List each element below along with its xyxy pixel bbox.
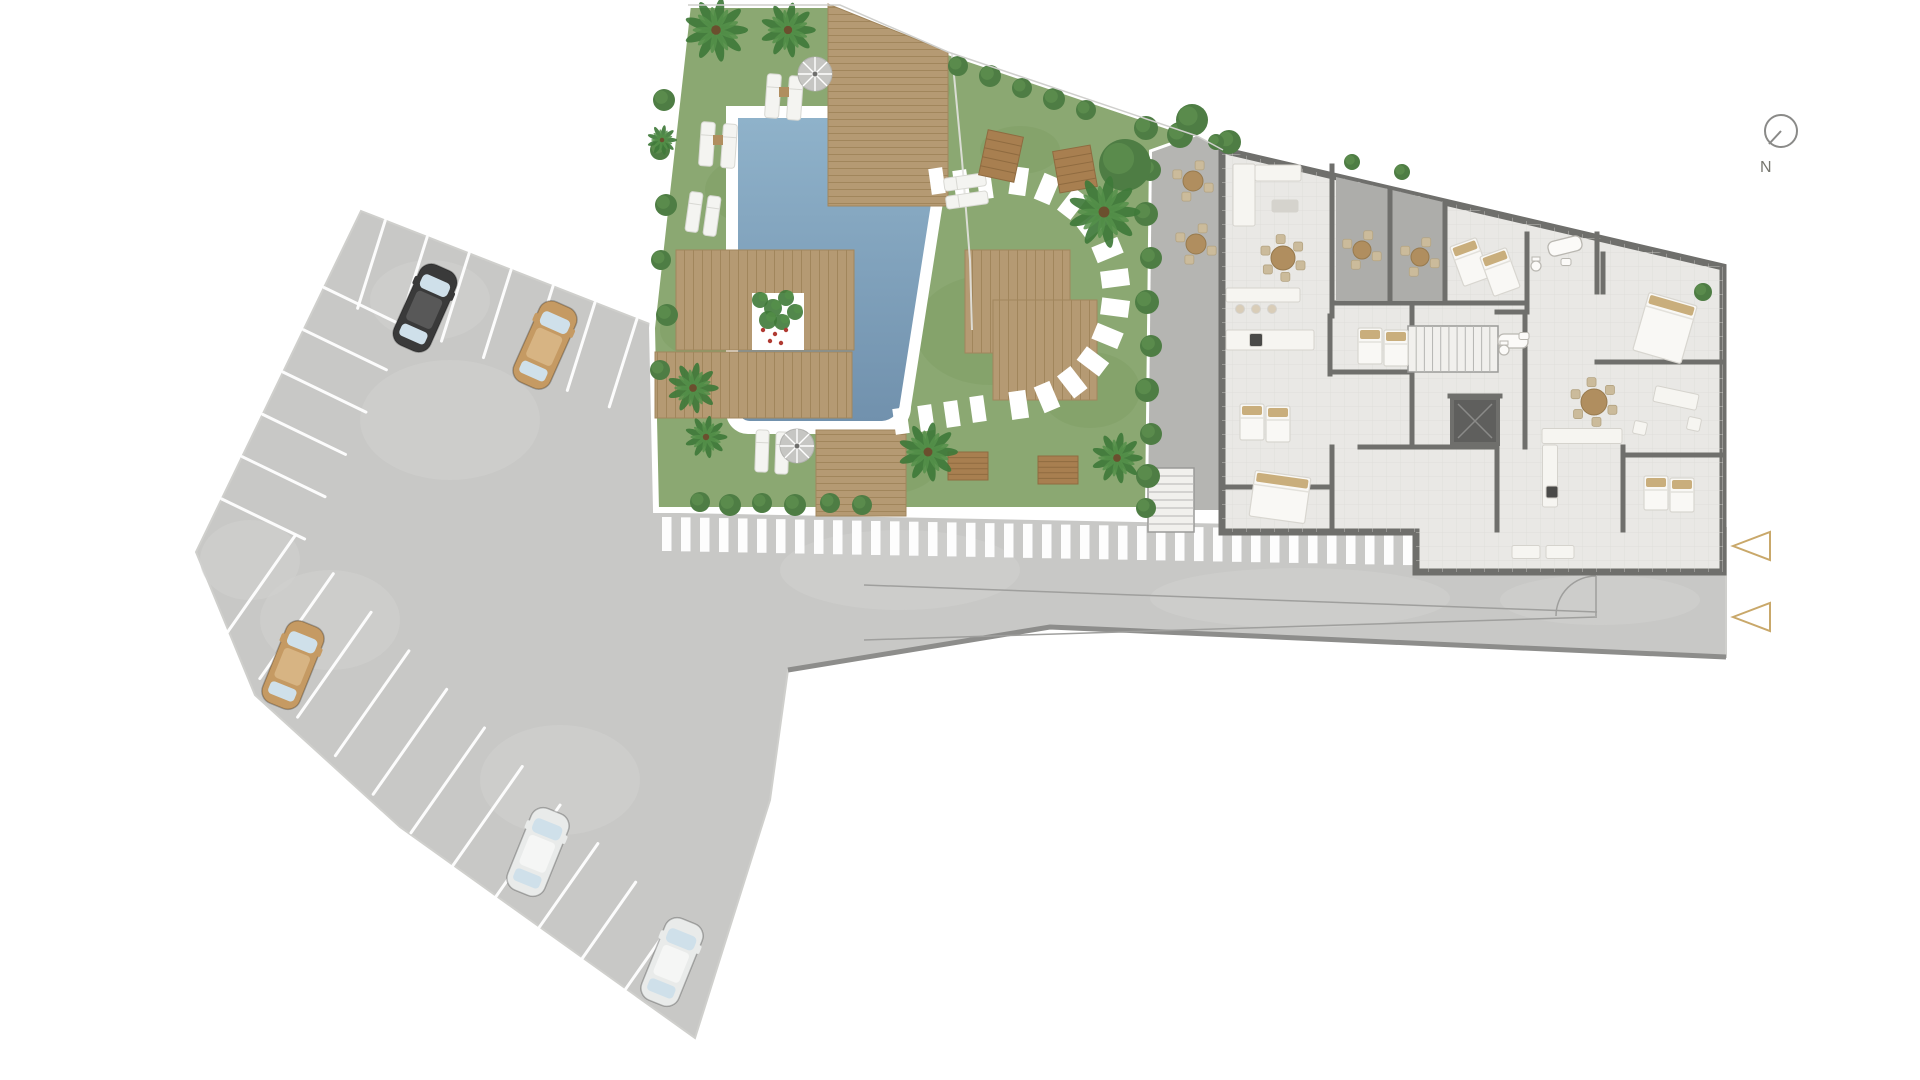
table-top — [1353, 241, 1371, 259]
furniture-item — [1233, 164, 1255, 226]
compass-needle-icon — [1769, 131, 1781, 144]
crosswalk-stripe — [1080, 525, 1090, 559]
planter-flower — [784, 328, 788, 332]
bush-highlight — [652, 362, 664, 374]
sunbed-frame — [1038, 456, 1078, 484]
bush-highlight — [1142, 249, 1155, 262]
crosswalk-stripe — [719, 518, 729, 552]
chair — [1173, 170, 1182, 179]
crosswalk-stripe — [852, 521, 862, 555]
bed-pillow — [1268, 408, 1288, 417]
chair — [1261, 246, 1270, 255]
bush-highlight — [754, 495, 766, 507]
toilet-tank — [1500, 341, 1508, 345]
asphalt-patch — [200, 520, 300, 600]
palm-trunk — [703, 434, 709, 440]
bed-pillow — [1386, 332, 1406, 341]
crosswalk-stripe — [662, 517, 672, 551]
palm-trunk — [711, 25, 721, 35]
crosswalk-stripe — [833, 520, 843, 554]
parasol-pole — [813, 72, 818, 77]
chair — [1592, 417, 1601, 426]
crosswalk-stripe — [1384, 531, 1394, 565]
stool — [1268, 305, 1277, 314]
bush-highlight — [1395, 165, 1405, 175]
table-top — [1581, 389, 1607, 415]
crosswalk-stripe — [909, 522, 919, 556]
table-top — [1271, 246, 1295, 270]
palm-trunk — [1113, 454, 1121, 462]
wood-sunbed — [1038, 456, 1078, 484]
bed — [1358, 328, 1382, 364]
palm-trunk — [924, 448, 933, 457]
toilet — [1531, 261, 1541, 271]
chair — [1605, 385, 1614, 394]
parasol-icon — [780, 429, 814, 463]
side-table — [779, 87, 789, 97]
lounger-base — [755, 430, 769, 472]
crosswalk-stripe — [776, 519, 786, 553]
crosswalk-stripe — [871, 521, 881, 555]
crosswalk-stripe — [1194, 527, 1204, 561]
chair — [1343, 239, 1352, 248]
chair — [1263, 265, 1272, 274]
chair — [1296, 261, 1305, 270]
bush-highlight — [1695, 284, 1706, 295]
furniture-item — [1226, 330, 1314, 350]
bush-highlight — [657, 196, 670, 209]
crosswalk-stripe — [757, 519, 767, 553]
crosswalk-stripe — [814, 520, 824, 554]
stepping-stone — [1100, 297, 1130, 317]
chair — [1571, 390, 1580, 399]
staircase — [1408, 326, 1498, 372]
chair — [1204, 183, 1213, 192]
furniture-item — [1546, 486, 1558, 498]
parasol-pole — [795, 444, 800, 449]
furniture-item — [1632, 420, 1647, 435]
bush-highlight — [1137, 292, 1151, 306]
chair — [1401, 246, 1410, 255]
chair — [1281, 272, 1290, 281]
bush-highlight — [1138, 466, 1152, 480]
table-top — [1411, 248, 1429, 266]
bush-highlight — [786, 496, 799, 509]
crosswalk-stripe — [928, 522, 938, 556]
entrance-arrow-icon — [1733, 532, 1770, 560]
planter-plant-highlight — [794, 305, 803, 314]
bed — [1266, 406, 1290, 442]
side-table — [713, 135, 723, 145]
sun-lounger — [755, 430, 769, 472]
furniture-item — [1686, 416, 1701, 431]
crosswalk-stripe — [738, 518, 748, 552]
asphalt-patch — [1500, 575, 1700, 625]
deck-planter — [752, 290, 804, 350]
bed-pillow — [1672, 480, 1692, 489]
terrace-floor — [1392, 190, 1443, 300]
lounger-base — [720, 124, 737, 169]
chair — [1195, 161, 1204, 170]
crosswalk-stripe — [947, 522, 957, 556]
layer-building — [1148, 150, 1724, 572]
furniture-item — [1542, 429, 1622, 444]
bush-highlight — [721, 496, 734, 509]
bush-highlight — [950, 58, 962, 70]
sun-lounger — [720, 124, 737, 169]
crosswalk-stripe — [1004, 523, 1014, 557]
chair — [1207, 246, 1216, 255]
bush-highlight — [1142, 425, 1155, 438]
furniture-item — [1255, 165, 1301, 181]
sun-lounger — [764, 74, 781, 119]
elevator — [1452, 398, 1498, 444]
wood-sunbed — [948, 452, 988, 480]
chair — [1372, 252, 1381, 261]
palm-trunk — [660, 138, 664, 142]
site-plan-canvas: N — [0, 0, 1920, 1080]
chair — [1182, 192, 1191, 201]
bush-highlight — [1103, 143, 1134, 174]
bed-pillow — [1646, 478, 1666, 487]
stepping-stone — [1100, 268, 1130, 288]
chair — [1351, 260, 1360, 269]
bush-highlight — [822, 495, 834, 507]
bush-highlight — [1078, 102, 1090, 114]
compass-north-label: N — [1760, 159, 1772, 176]
asphalt-patch — [360, 360, 540, 480]
furniture-item — [1272, 200, 1298, 212]
sink — [1519, 333, 1529, 340]
bush-highlight — [1142, 337, 1155, 350]
bush-highlight — [692, 494, 704, 506]
sink — [1561, 259, 1571, 266]
bush-highlight — [1014, 80, 1026, 92]
bed — [1240, 404, 1264, 440]
bed-pillow — [1360, 330, 1380, 339]
crosswalk-stripe — [681, 517, 691, 551]
sun-lounger — [698, 122, 715, 167]
stool — [1252, 305, 1261, 314]
bush-highlight — [1045, 90, 1058, 103]
crosswalk-stripe — [1061, 525, 1071, 559]
bush-highlight — [1345, 155, 1355, 165]
furniture-item — [1250, 334, 1263, 347]
site-plan-svg: N — [0, 0, 1920, 1080]
asphalt-patch — [1150, 568, 1450, 628]
chair — [1430, 259, 1439, 268]
chair — [1198, 224, 1207, 233]
planter-plant-highlight — [771, 300, 781, 310]
stair-well — [1408, 326, 1498, 372]
terrace-floor — [1336, 177, 1388, 300]
crosswalk-stripe — [966, 523, 976, 557]
planter-plant-highlight — [785, 291, 794, 300]
toilet-tank — [1532, 257, 1540, 261]
crosswalk-stripe — [1023, 524, 1033, 558]
palm-trunk — [784, 26, 792, 34]
planter-flower — [768, 339, 772, 343]
chair — [1587, 378, 1596, 387]
crosswalk-stripe — [985, 523, 995, 557]
lounger-base — [764, 74, 781, 119]
table-top — [1186, 234, 1206, 254]
furniture-item — [1546, 546, 1574, 559]
planter-flower — [761, 328, 765, 332]
furniture-item — [1226, 288, 1300, 302]
palm-trunk — [1099, 207, 1110, 218]
planter-flower — [779, 341, 783, 345]
crosswalk-stripe — [1042, 524, 1052, 558]
palm-trunk — [689, 384, 697, 392]
planter-plant-highlight — [781, 315, 790, 324]
bush-highlight — [1138, 500, 1150, 512]
furniture-item — [1512, 546, 1540, 559]
chair — [1409, 267, 1418, 276]
chair — [1364, 231, 1373, 240]
chair — [1276, 235, 1285, 244]
compass: N — [1760, 115, 1797, 176]
chair — [1422, 238, 1431, 247]
chair — [1185, 255, 1194, 264]
crosswalk-stripe — [795, 520, 805, 554]
bush-highlight — [981, 67, 994, 80]
chair — [1176, 233, 1185, 242]
bush-highlight — [1178, 106, 1197, 125]
bush-highlight — [653, 252, 665, 264]
bush-highlight — [854, 497, 866, 509]
bed — [1384, 330, 1408, 366]
bed-pillow — [1242, 406, 1262, 415]
planter-plant-highlight — [766, 312, 776, 322]
entrance-arrow-icon — [1733, 603, 1770, 631]
crosswalk-stripe — [890, 521, 900, 555]
planter-plant-highlight — [759, 293, 768, 302]
crosswalk-stripe — [1403, 531, 1413, 565]
bed — [1670, 478, 1694, 512]
chair — [1608, 405, 1617, 414]
bed — [1644, 476, 1668, 510]
chair — [1574, 410, 1583, 419]
lounger-base — [698, 122, 715, 167]
planter-flower — [773, 332, 777, 336]
bush-highlight — [655, 91, 668, 104]
crosswalk-stripe — [700, 518, 710, 552]
parasol-icon — [798, 57, 832, 91]
crosswalk-stripe — [1137, 526, 1147, 560]
stool — [1236, 305, 1245, 314]
crosswalk-stripe — [1118, 526, 1128, 560]
bed — [1249, 470, 1311, 523]
toilet — [1499, 345, 1509, 355]
bush-highlight — [658, 306, 671, 319]
table-top — [1183, 171, 1203, 191]
sunbed-frame — [948, 452, 988, 480]
entrance-arrow-markers — [1733, 532, 1770, 631]
crosswalk-stripe — [1099, 525, 1109, 559]
bush-highlight — [1137, 380, 1151, 394]
chair — [1294, 242, 1303, 251]
